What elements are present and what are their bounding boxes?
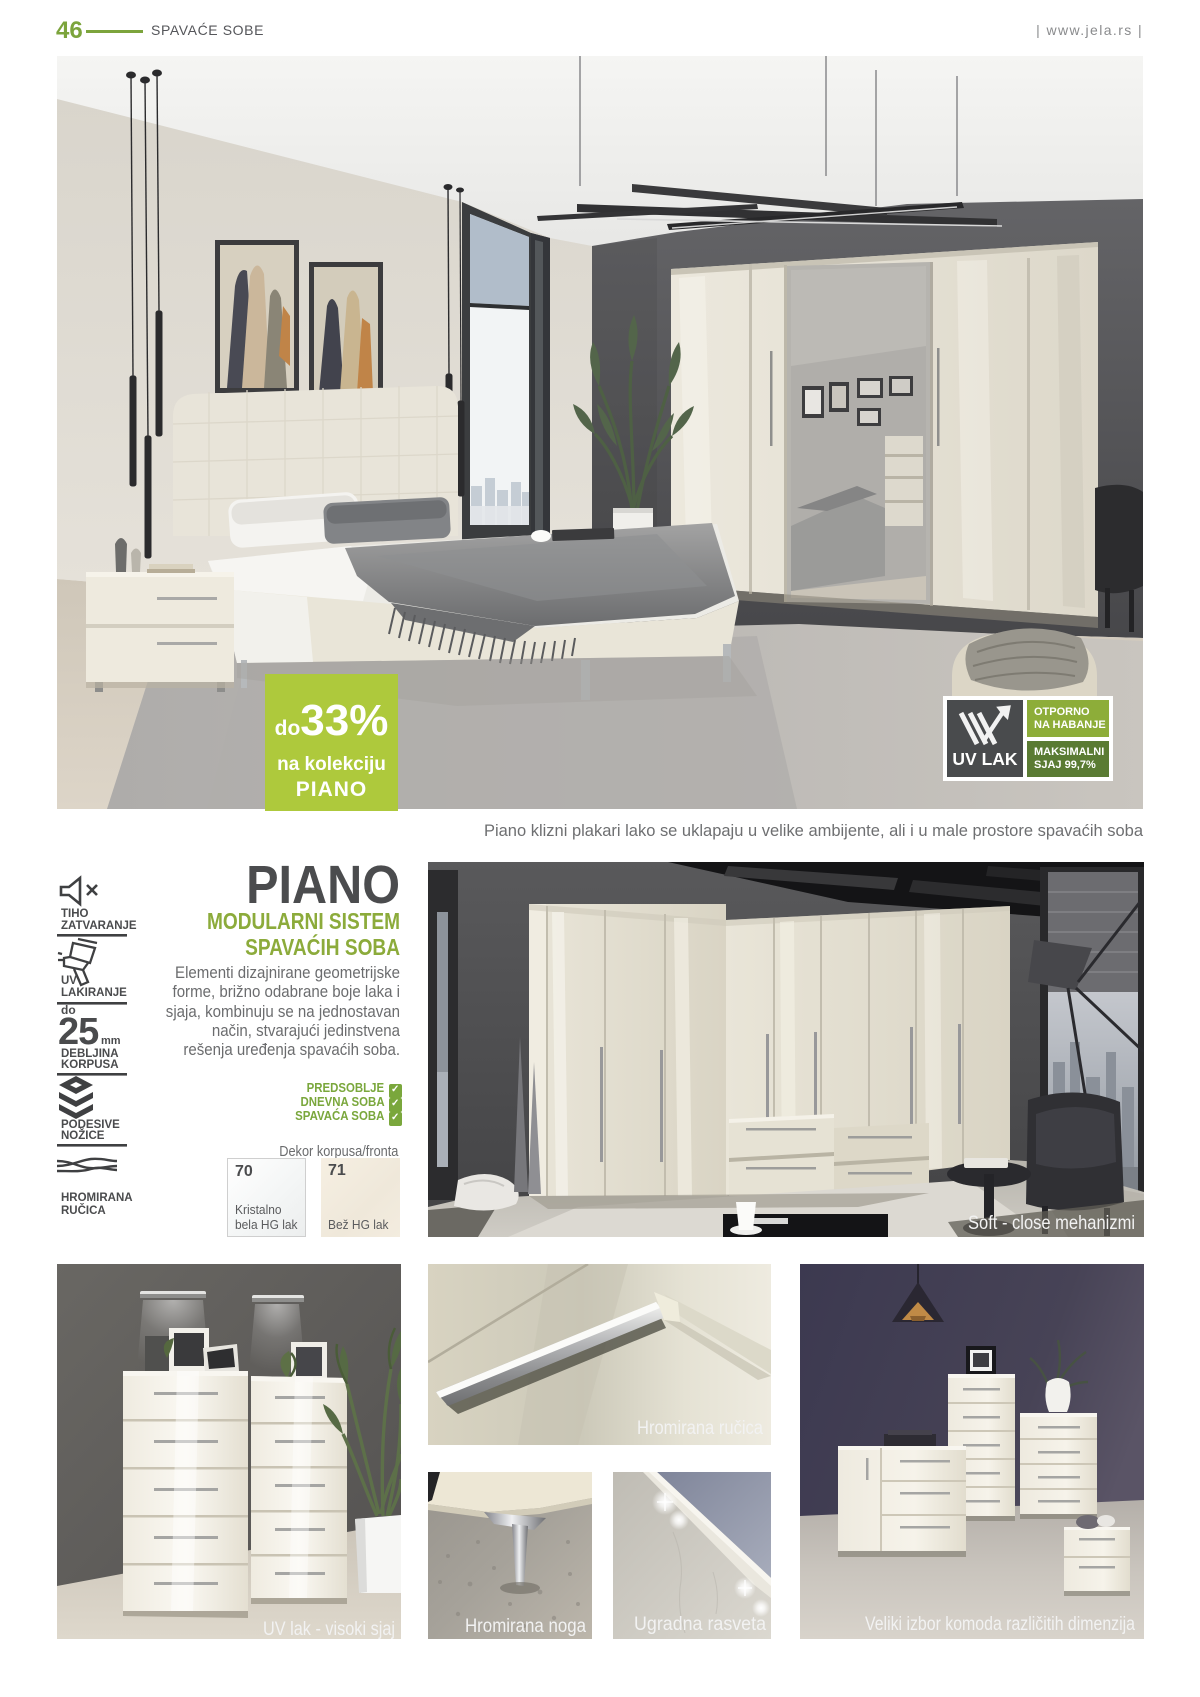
svg-text:UV LAK: UV LAK <box>952 749 1018 769</box>
svg-text:mm: mm <box>101 1035 121 1047</box>
svg-text:LAKIRANJE: LAKIRANJE <box>61 987 127 999</box>
svg-text:KORPUSA: KORPUSA <box>61 1059 119 1071</box>
svg-text:NOŽICE: NOŽICE <box>61 1129 105 1142</box>
svg-text:Hromirana ručica: Hromirana ručica <box>637 1418 763 1439</box>
svg-text:Ugradna rasveta: Ugradna rasveta <box>634 1614 766 1635</box>
svg-text:UV: UV <box>61 975 77 987</box>
svg-text:RUČICA: RUČICA <box>61 1204 106 1217</box>
svg-text:25: 25 <box>58 1011 99 1053</box>
svg-text:TIHO: TIHO <box>61 908 89 920</box>
svg-text:Soft - close mehanizmi: Soft - close mehanizmi <box>968 1213 1135 1234</box>
svg-text:Hromirana noga: Hromirana noga <box>465 1616 586 1637</box>
svg-text:Veliki izbor komoda različitih: Veliki izbor komoda različitih dimenzija <box>865 1614 1135 1635</box>
svg-text:UV lak - visoki sjaj: UV lak - visoki sjaj <box>263 1619 395 1639</box>
